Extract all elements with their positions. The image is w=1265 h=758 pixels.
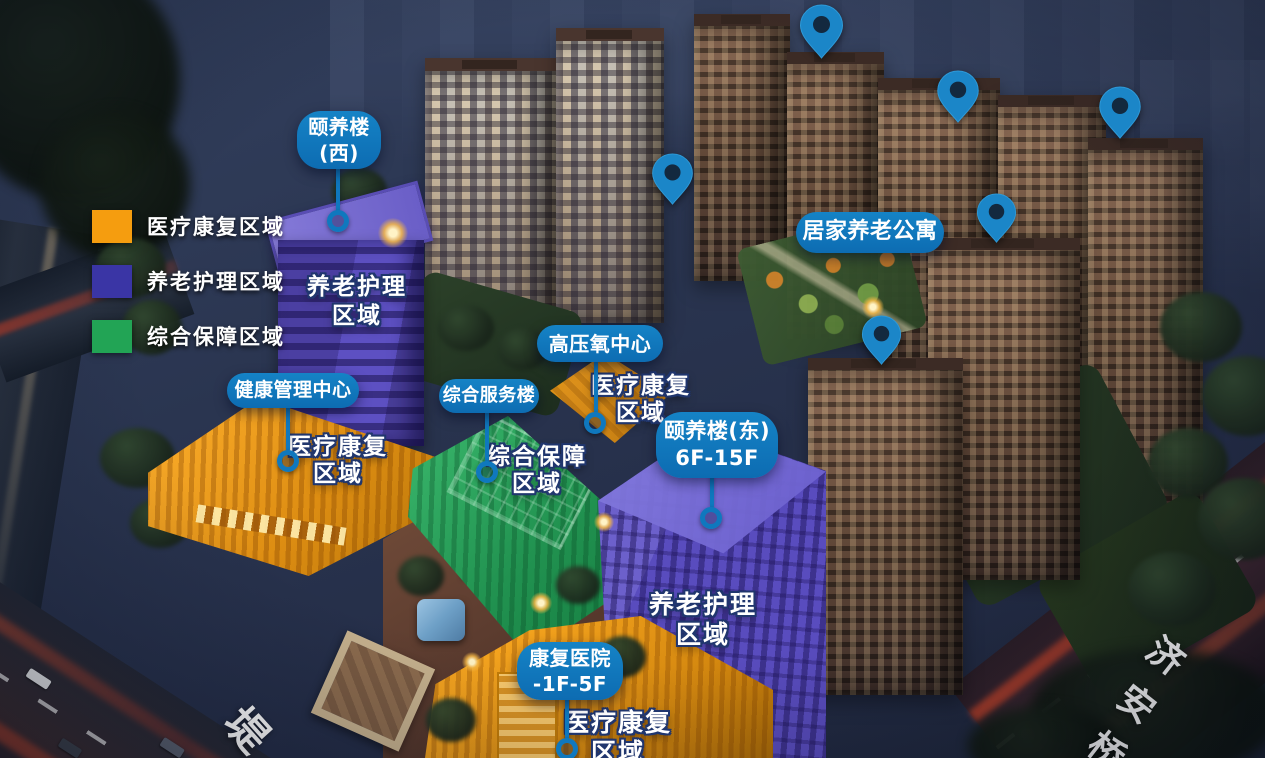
car: [58, 738, 83, 758]
connector-line: [710, 476, 714, 508]
callout-text: 颐养楼: [308, 114, 370, 140]
connector-ring: [327, 210, 349, 232]
legend-swatch-orange: [92, 210, 132, 243]
connector-ring: [556, 738, 578, 758]
legend-swatch-green: [92, 320, 132, 353]
connector-line: [565, 698, 569, 739]
zone-label-care-west: 养老护理 区域: [307, 273, 407, 331]
street-lamp-glow: [378, 218, 408, 248]
street-lamp-glow: [462, 652, 482, 672]
legend-label: 养老护理区域: [147, 266, 285, 296]
zone-label-line: 医疗康复: [288, 434, 388, 461]
location-pin-icon: [651, 153, 694, 206]
callout-kangfu-yiyuan: 康复医院 -1F-5F: [517, 642, 623, 700]
callout-yiyanglou-east: 颐养楼(东) 6F-15F: [656, 412, 778, 478]
zone-label-line: 区域: [487, 471, 587, 498]
zone-label-line: 养老护理: [649, 590, 757, 620]
tree: [438, 305, 494, 351]
tree: [1160, 292, 1242, 362]
zone-label-line: 养老护理: [307, 273, 407, 302]
tower: [808, 358, 963, 695]
legend-swatch-purple: [92, 265, 132, 298]
lit-arcade: [196, 504, 347, 545]
tower: [556, 28, 664, 323]
road-bottom-left: [0, 540, 388, 758]
location-pin-icon: [1098, 86, 1142, 140]
connector-ring: [476, 461, 498, 483]
legend-item: 医疗康复区域: [92, 208, 285, 244]
connector-line: [286, 405, 290, 451]
tree: [398, 556, 444, 596]
legend-label: 医疗康复区域: [147, 211, 285, 241]
location-pin-icon: [936, 70, 980, 124]
tail-light-trails: [0, 563, 373, 758]
zone-label-medical-left: 医疗康复 区域: [288, 434, 388, 488]
zone-label-support-center: 综合保障 区域: [487, 444, 587, 498]
zone-label-line: 区域: [649, 620, 757, 650]
tree: [1128, 552, 1216, 626]
street-lamp-glow: [594, 512, 614, 532]
connector-line: [336, 167, 340, 213]
connector-line: [594, 360, 598, 413]
callout-yiyanglou-west: 颐养楼 (西): [297, 111, 381, 169]
legend: 医疗康复区域 养老护理区域 综合保障区域: [92, 208, 285, 373]
connector-ring: [277, 450, 299, 472]
location-pin-icon: [799, 4, 844, 60]
zone-label-line: 综合保障: [487, 444, 587, 471]
location-pin-icon: [861, 315, 902, 366]
street-lamp-glow: [530, 592, 552, 614]
legend-item: 综合保障区域: [92, 318, 285, 354]
location-pin-icon: [976, 193, 1017, 244]
callout-text: -1F-5F: [533, 671, 607, 697]
connector-line: [485, 411, 489, 462]
zone-label-care-east: 养老护理 区域: [649, 590, 757, 650]
zone-label-line: 区域: [307, 302, 407, 331]
tree: [1202, 356, 1265, 436]
callout-jiankang-guanli-zhongxin: 健康管理中心: [227, 373, 359, 408]
callout-gaoyayang-zhongxin: 高压氧中心: [537, 325, 663, 362]
callout-text: 康复医院: [529, 645, 611, 671]
connector-ring: [700, 507, 722, 529]
callout-zonghe-fuwu-lou: 综合服务楼: [439, 379, 539, 413]
callout-text: 颐养楼(东): [664, 418, 770, 445]
zone-label-line: 区域: [288, 461, 388, 488]
tree: [556, 566, 600, 604]
callout-text: 6F-15F: [675, 445, 759, 472]
connector-ring: [584, 412, 606, 434]
car: [25, 668, 51, 690]
callout-text: 健康管理中心: [234, 378, 351, 403]
callout-text: (西): [319, 140, 359, 166]
callout-jujia-yanglao-gongyu: 居家养老公寓: [796, 212, 944, 253]
legend-item: 养老护理区域: [92, 263, 285, 299]
zone-label-line: 医疗康复: [564, 708, 672, 738]
site-plan-rendering: 颐养楼 (西) 居家养老公寓 高压氧中心 健康管理中心 综合服务楼 颐养楼(东)…: [0, 0, 1265, 758]
glass-sculpture: [417, 599, 465, 641]
callout-text: 高压氧中心: [549, 331, 652, 357]
zone-label-line: 医疗康复: [591, 373, 691, 400]
zone-label-line: 区域: [564, 738, 672, 758]
callout-text: 综合服务楼: [443, 384, 536, 407]
zone-label-medical-bottom: 医疗康复 区域: [564, 708, 672, 758]
callout-text: 居家养老公寓: [802, 218, 937, 247]
tree: [426, 698, 476, 742]
legend-label: 综合保障区域: [147, 321, 285, 351]
